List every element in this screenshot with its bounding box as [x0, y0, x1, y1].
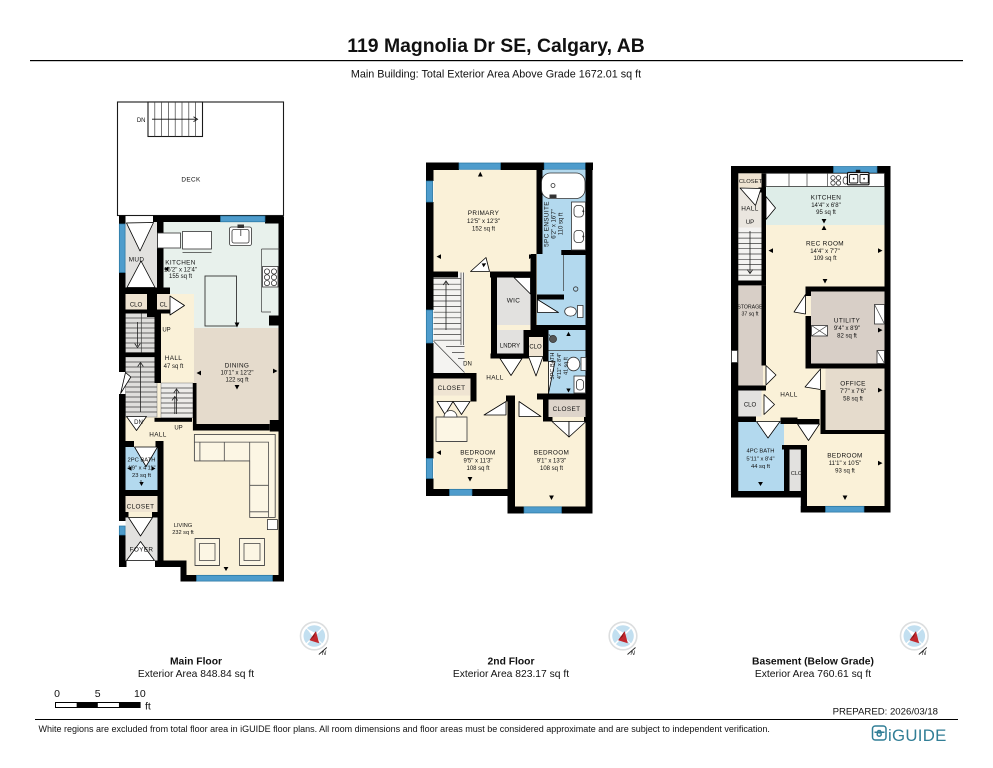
svg-text:WIC: WIC [507, 298, 521, 305]
svg-text:2PC BATH: 2PC BATH [128, 458, 156, 464]
svg-text:58 sq ft: 58 sq ft [843, 397, 863, 403]
svg-text:CLOSET: CLOSET [127, 504, 155, 511]
svg-text:23 sq ft: 23 sq ft [132, 473, 151, 479]
svg-text:DN: DN [463, 362, 472, 368]
svg-text:Exterior Area 823.17 sq ft: Exterior Area 823.17 sq ft [453, 669, 569, 680]
svg-text:0: 0 [54, 688, 60, 700]
svg-text:BEDROOM: BEDROOM [827, 453, 862, 460]
svg-text:PRIMARY: PRIMARY [468, 210, 500, 217]
svg-text:14'4" x 7'7": 14'4" x 7'7" [810, 249, 840, 255]
svg-text:CL: CL [160, 303, 168, 309]
svg-text:UP: UP [746, 220, 754, 226]
svg-text:HALL: HALL [780, 392, 797, 399]
svg-text:7'7" x 7'6": 7'7" x 7'6" [840, 389, 866, 395]
svg-text:14'4" x 6'8": 14'4" x 6'8" [811, 203, 841, 209]
svg-text:iGUIDE: iGUIDE [888, 726, 947, 745]
svg-text:CLO: CLO [529, 345, 542, 351]
svg-text:Basement (Below Grade): Basement (Below Grade) [752, 657, 874, 668]
svg-text:9'4" x 8'9": 9'4" x 8'9" [834, 326, 860, 332]
svg-text:OFFICE: OFFICE [840, 381, 866, 388]
svg-text:BEDROOM: BEDROOM [460, 450, 495, 457]
svg-text:N: N [631, 650, 636, 657]
svg-text:15'2" x 12'4": 15'2" x 12'4" [164, 268, 197, 274]
svg-text:HALL: HALL [149, 432, 166, 439]
svg-text:6'2" x 16'7": 6'2" x 16'7" [552, 209, 558, 239]
svg-text:DN: DN [137, 118, 146, 124]
svg-text:9'5" x 11'3": 9'5" x 11'3" [463, 459, 492, 465]
svg-text:CLO: CLO [130, 303, 143, 309]
svg-text:HALL: HALL [165, 355, 182, 362]
svg-text:37 sq ft: 37 sq ft [741, 312, 759, 318]
svg-text:CLOSET: CLOSET [739, 179, 763, 185]
svg-text:N: N [322, 650, 327, 657]
svg-text:CLO: CLO [791, 471, 803, 477]
svg-text:4PC BATH: 4PC BATH [747, 449, 775, 455]
svg-text:Main Floor: Main Floor [170, 657, 222, 668]
svg-text:CLO: CLO [744, 403, 757, 409]
svg-text:UP: UP [162, 328, 170, 334]
svg-text:DECK: DECK [181, 177, 201, 184]
svg-text:12'5" x 12'3": 12'5" x 12'3" [467, 219, 500, 225]
svg-text:UP: UP [174, 426, 182, 432]
svg-text:108 sq ft: 108 sq ft [466, 466, 489, 472]
svg-text:122 sq ft: 122 sq ft [225, 378, 248, 384]
svg-text:9'1" x 13'3": 9'1" x 13'3" [537, 459, 567, 465]
svg-text:5PC ENSUITE: 5PC ENSUITE [544, 201, 551, 247]
svg-text:11'1" x 10'5": 11'1" x 10'5" [829, 461, 861, 467]
svg-text:108 sq ft: 108 sq ft [540, 466, 563, 472]
svg-text:110 sq ft: 110 sq ft [559, 212, 565, 235]
svg-text:109 sq ft: 109 sq ft [813, 256, 836, 262]
svg-text:CLOSET: CLOSET [438, 385, 466, 392]
svg-text:95 sq ft: 95 sq ft [816, 210, 836, 216]
svg-text:ft: ft [145, 701, 151, 713]
svg-text:232 sq ft: 232 sq ft [172, 530, 194, 536]
svg-text:LIVING: LIVING [174, 523, 192, 529]
svg-text:41 sq ft: 41 sq ft [564, 357, 570, 375]
svg-text:152 sq ft: 152 sq ft [472, 227, 495, 233]
svg-text:93 sq ft: 93 sq ft [835, 469, 855, 475]
svg-text:2nd Floor: 2nd Floor [488, 657, 535, 668]
svg-text:MUD: MUD [129, 257, 145, 264]
svg-text:PREPARED: 2026/03/18: PREPARED: 2026/03/18 [833, 707, 938, 718]
svg-text:3PC BATH: 3PC BATH [550, 353, 556, 380]
svg-text:LNDRY: LNDRY [500, 344, 520, 350]
svg-text:44 sq ft: 44 sq ft [751, 464, 770, 470]
svg-text:5'11" x 8'4": 5'11" x 8'4" [746, 457, 774, 463]
svg-text:10: 10 [134, 688, 146, 700]
svg-text:UTILITY: UTILITY [834, 318, 861, 325]
svg-text:Exterior Area 760.61 sq ft: Exterior Area 760.61 sq ft [755, 669, 871, 680]
svg-text:CLOSET: CLOSET [553, 406, 581, 413]
svg-text:5: 5 [95, 688, 101, 700]
svg-text:STORAGE: STORAGE [737, 305, 763, 311]
svg-text:REC ROOM: REC ROOM [806, 241, 844, 248]
svg-text:FOYER: FOYER [130, 547, 154, 554]
svg-text:White regions are excluded fro: White regions are excluded from total fl… [39, 724, 770, 734]
svg-text:KITCHEN: KITCHEN [811, 195, 842, 202]
svg-text:119 Magnolia Dr SE, Calgary, A: 119 Magnolia Dr SE, Calgary, AB [347, 35, 644, 57]
svg-text:HALL: HALL [486, 375, 503, 382]
svg-text:4'9" x 4'11": 4'9" x 4'11" [127, 466, 155, 472]
svg-text:155 sq ft: 155 sq ft [169, 274, 192, 280]
svg-text:82 sq ft: 82 sq ft [837, 334, 857, 340]
svg-text:N: N [922, 650, 927, 657]
svg-text:BEDROOM: BEDROOM [534, 450, 569, 457]
svg-text:DN: DN [134, 420, 143, 426]
svg-text:4'11" x 8'4": 4'11" x 8'4" [557, 353, 563, 379]
svg-text:Exterior Area 848.84 sq ft: Exterior Area 848.84 sq ft [138, 669, 254, 680]
svg-text:47 sq ft: 47 sq ft [164, 364, 184, 370]
svg-text:HALL: HALL [741, 206, 758, 213]
svg-text:Main Building: Total Exterior: Main Building: Total Exterior Area Above… [351, 69, 641, 81]
svg-text:DINING: DINING [225, 363, 249, 370]
svg-text:KITCHEN: KITCHEN [165, 260, 196, 267]
svg-text:10'1" x 12'2": 10'1" x 12'2" [221, 371, 254, 377]
